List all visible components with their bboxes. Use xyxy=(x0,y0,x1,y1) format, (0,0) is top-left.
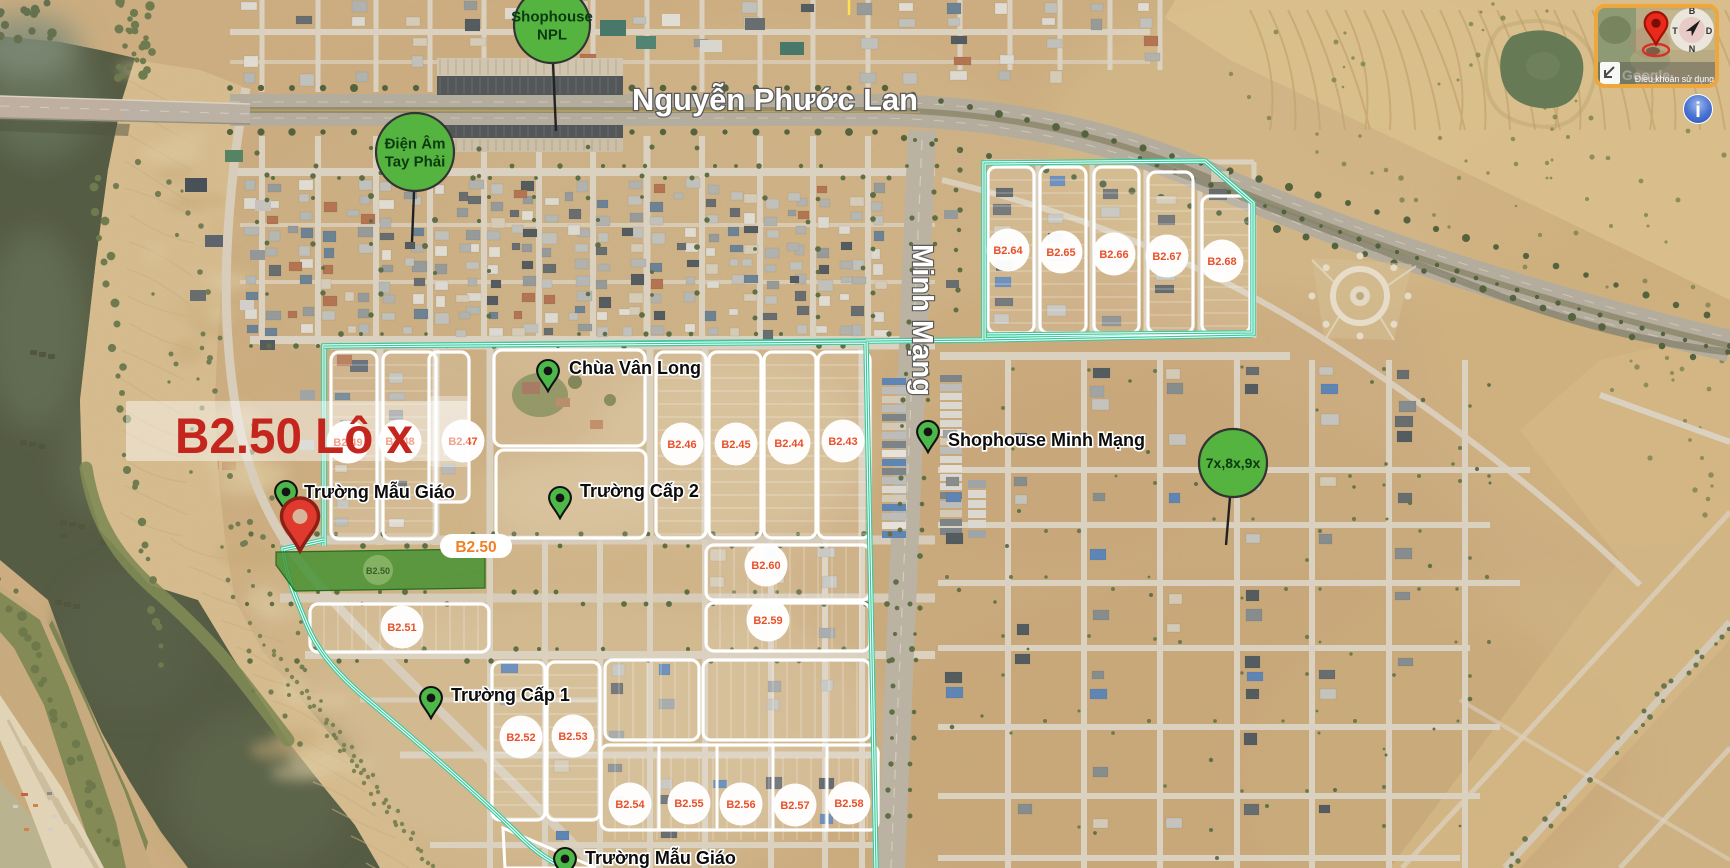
svg-text:B2.50: B2.50 xyxy=(366,566,390,576)
svg-text:B2.66: B2.66 xyxy=(1099,249,1128,261)
svg-text:B2.60: B2.60 xyxy=(751,560,780,572)
svg-text:Trường Mẫu Giáo: Trường Mẫu Giáo xyxy=(585,847,736,868)
svg-text:Chùa Vân Long: Chùa Vân Long xyxy=(569,358,701,378)
svg-text:B2.52: B2.52 xyxy=(506,732,535,744)
svg-text:B2.57: B2.57 xyxy=(780,800,809,812)
svg-text:B2.58: B2.58 xyxy=(834,798,863,810)
svg-text:i: i xyxy=(1695,99,1701,122)
svg-text:Minh Mạng: Minh Mạng xyxy=(906,244,938,396)
svg-text:Shophouse Minh Mạng: Shophouse Minh Mạng xyxy=(948,430,1145,450)
svg-text:B2.54: B2.54 xyxy=(615,799,645,811)
svg-text:B2.50: B2.50 xyxy=(455,539,496,556)
svg-text:B2.67: B2.67 xyxy=(1152,251,1181,263)
svg-text:B2.55: B2.55 xyxy=(674,798,703,810)
svg-text:Điện Âm: Điện Âm xyxy=(385,134,446,152)
svg-text:B2.50 Lô x: B2.50 Lô x xyxy=(175,408,413,464)
svg-text:B2.65: B2.65 xyxy=(1046,247,1075,259)
svg-text:7x,8x,9x: 7x,8x,9x xyxy=(1206,455,1261,471)
svg-text:B2.64: B2.64 xyxy=(993,245,1023,257)
svg-text:Trường Cấp 1: Trường Cấp 1 xyxy=(451,685,570,705)
svg-text:B2.53: B2.53 xyxy=(558,731,587,743)
svg-text:B2.59: B2.59 xyxy=(753,615,782,627)
svg-text:B2.43: B2.43 xyxy=(828,436,857,448)
svg-text:Nguyễn Phước Lan: Nguyễn Phước Lan xyxy=(632,82,918,117)
svg-text:Trường Mẫu Giáo: Trường Mẫu Giáo xyxy=(304,481,455,502)
svg-text:B2.44: B2.44 xyxy=(774,438,804,450)
svg-text:B2.46: B2.46 xyxy=(667,439,696,451)
svg-text:T: T xyxy=(1672,26,1678,36)
svg-text:B2.68: B2.68 xyxy=(1207,256,1236,268)
svg-text:D: D xyxy=(1706,26,1713,36)
svg-text:Điều khoản sử dụng: Điều khoản sử dụng xyxy=(1635,74,1714,84)
svg-text:B2.56: B2.56 xyxy=(726,799,755,811)
svg-text:NPL: NPL xyxy=(537,26,567,43)
svg-text:Trường Cấp 2: Trường Cấp 2 xyxy=(580,481,699,501)
svg-text:B2.51: B2.51 xyxy=(387,622,416,634)
svg-text:B2.45: B2.45 xyxy=(721,439,750,451)
svg-text:N: N xyxy=(1689,44,1696,54)
svg-text:Tay Phải: Tay Phải xyxy=(385,153,446,170)
svg-text:Shophouse: Shophouse xyxy=(511,8,593,25)
